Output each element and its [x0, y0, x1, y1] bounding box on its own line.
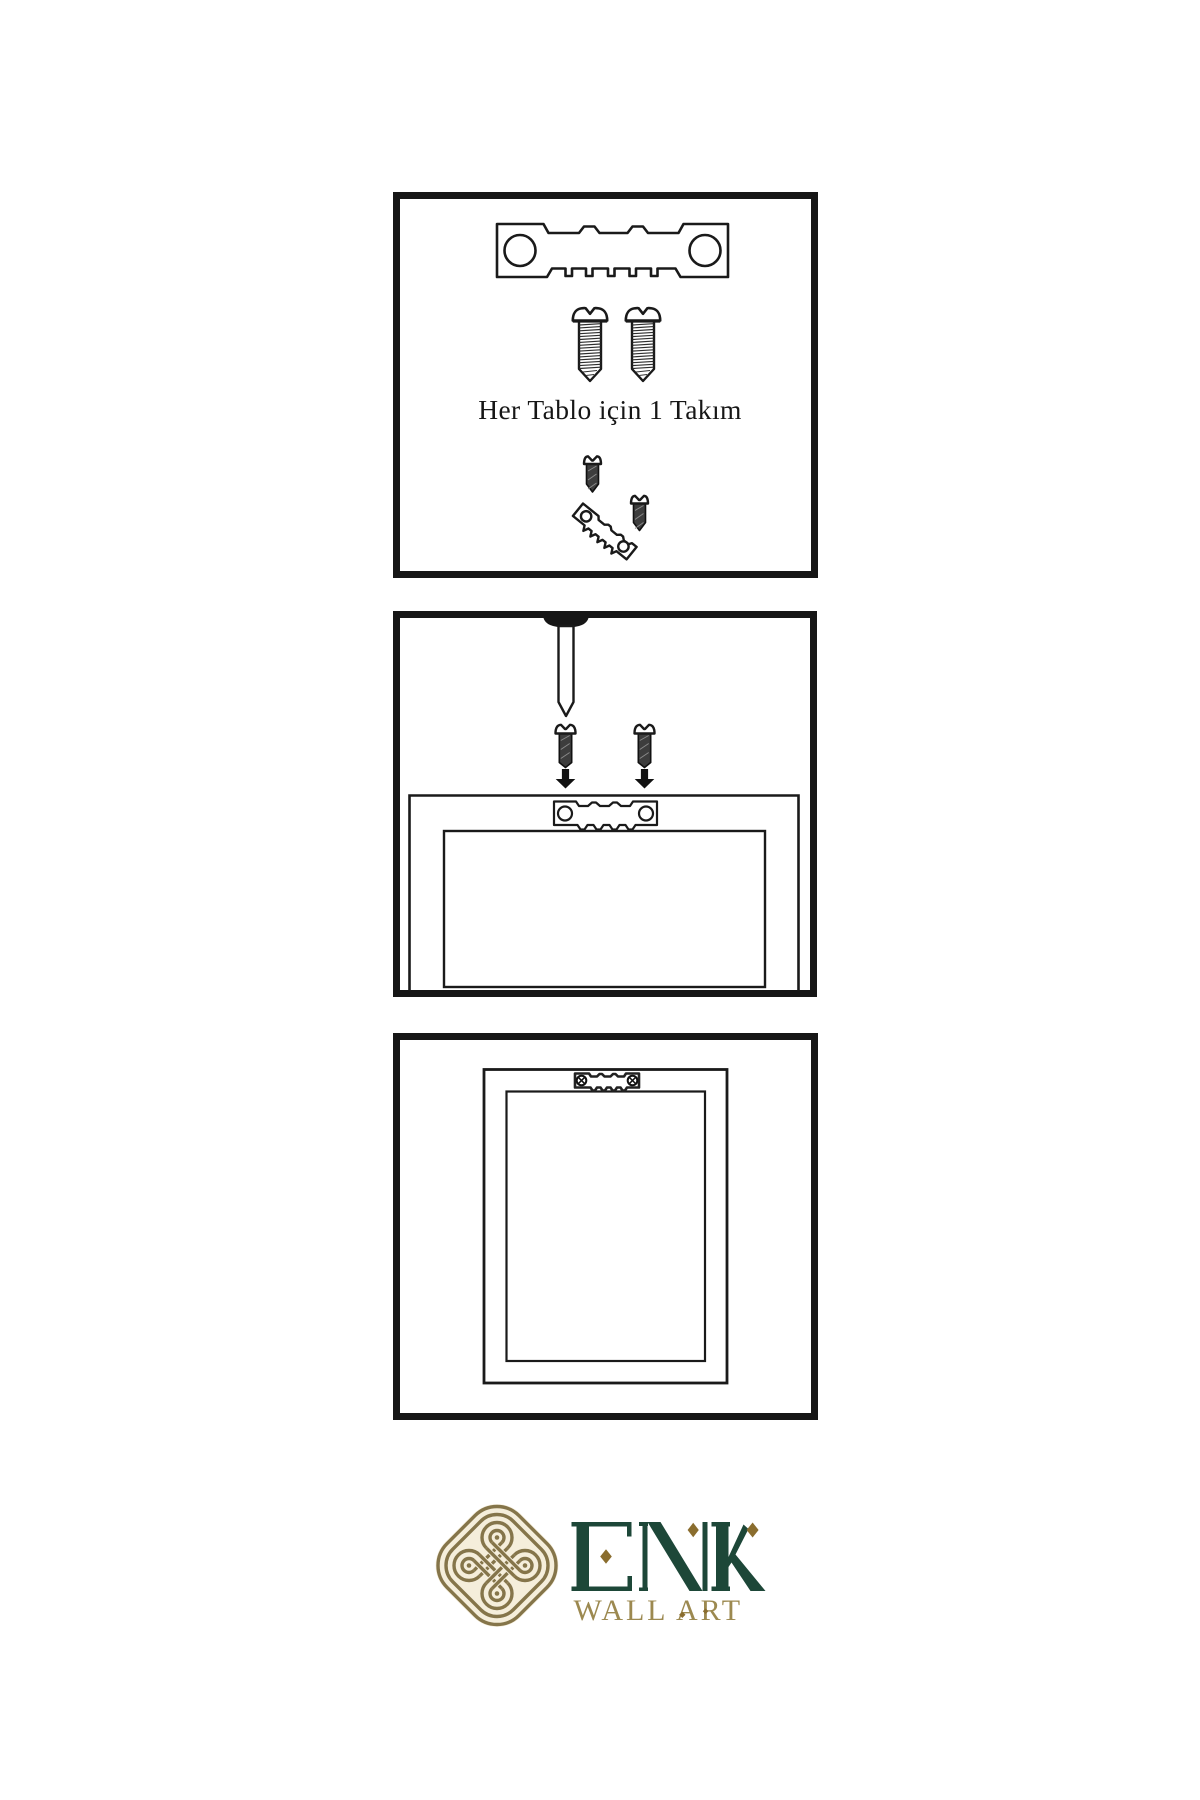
svg-text:WALL ART: WALL ART	[574, 1594, 743, 1627]
svg-text:Her Tablo için 1 Takım: Her Tablo için 1 Takım	[478, 394, 742, 425]
